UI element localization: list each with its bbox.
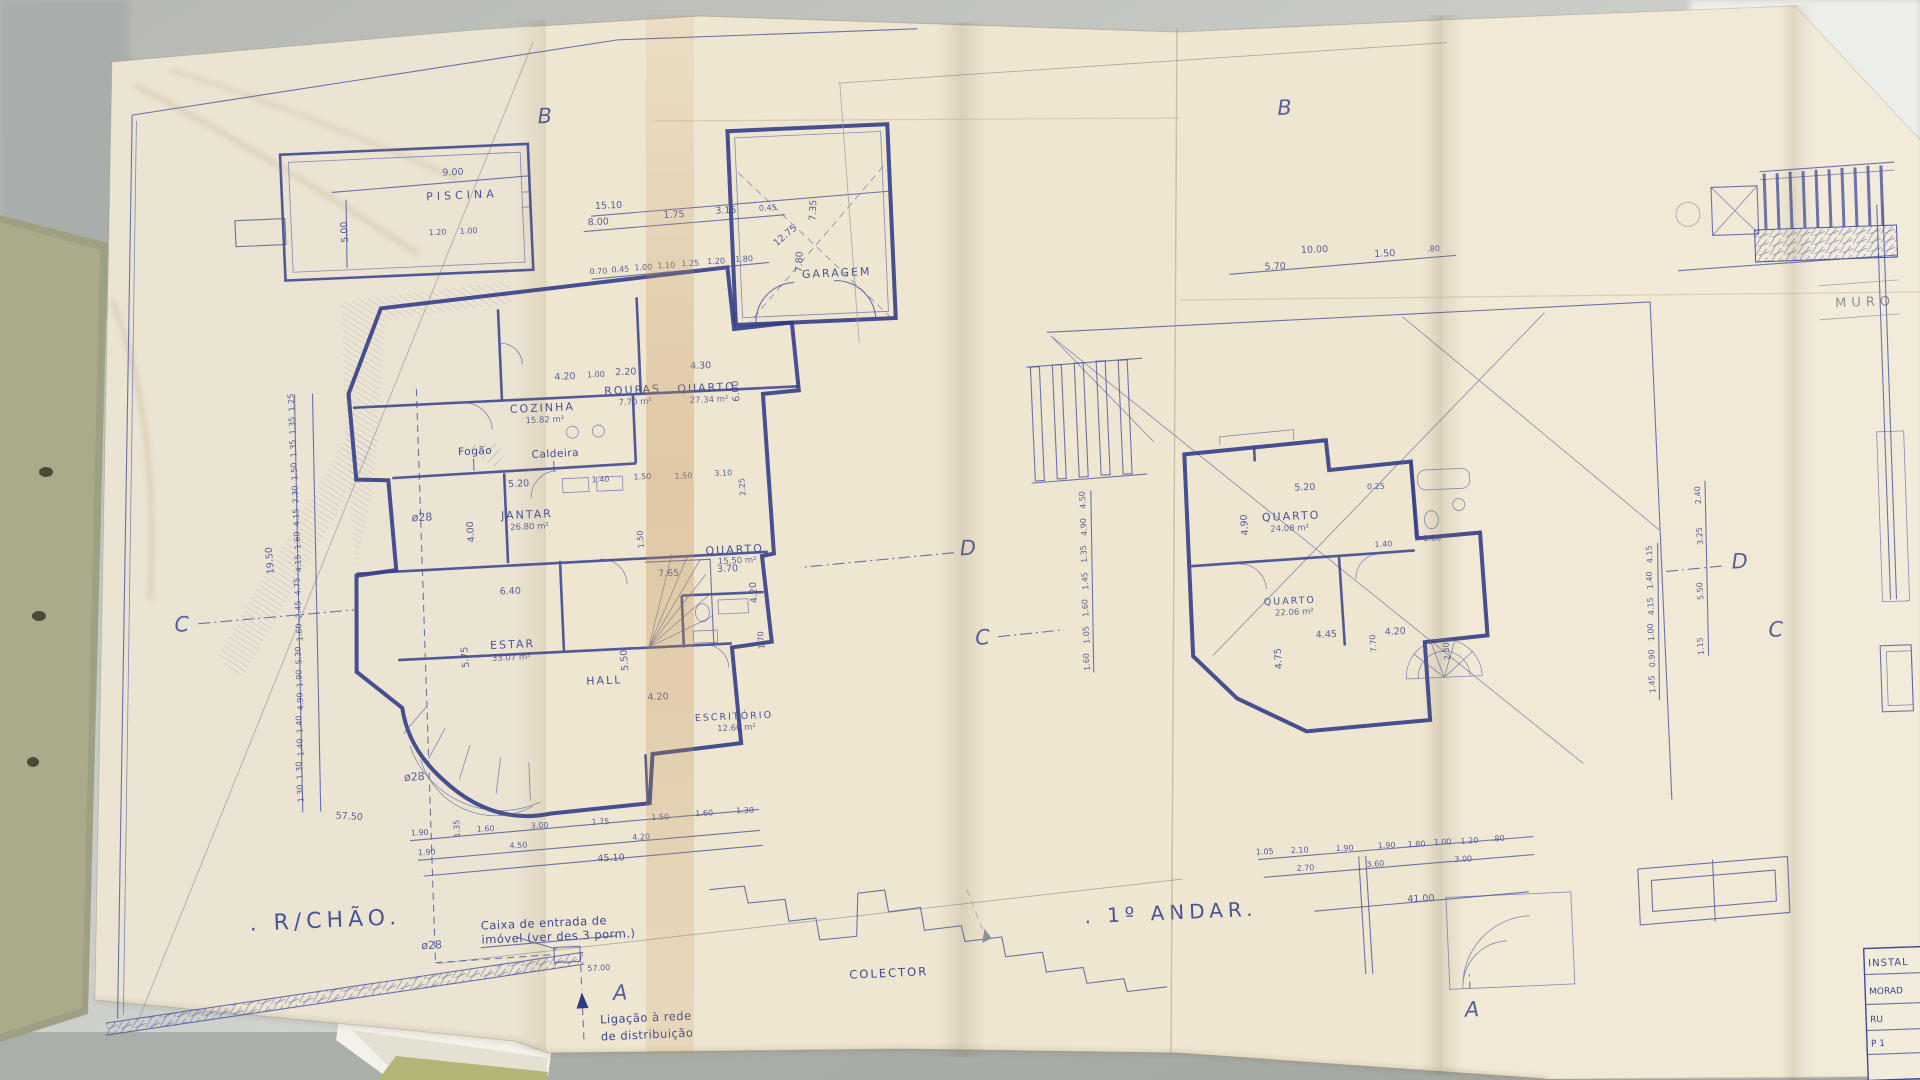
dim-label: 1.75 (591, 817, 609, 827)
room-label: QUARTO (1262, 509, 1321, 525)
binder-hole (27, 757, 39, 767)
dim-label: 3.70 (717, 563, 739, 575)
room-label: QUARTO (1264, 595, 1317, 608)
dim-label: 1.90 (411, 828, 429, 838)
dim-label: 1.60 (292, 531, 302, 549)
dim-label: 4.15 (1646, 597, 1656, 615)
dim-label: 45.10 (597, 852, 625, 864)
dim-label: 1.90 (1377, 841, 1395, 851)
room-area: 24.08 m² (1270, 523, 1309, 535)
dim-label: 2.45 (293, 600, 303, 618)
table-row: RU (1870, 1015, 1883, 1025)
dim-label: 4.50 (1078, 491, 1088, 509)
room-area: 27.34 m² (690, 394, 729, 406)
dim-label: 5.20 (1294, 482, 1316, 494)
dim-label: 0.25 (1367, 482, 1385, 492)
pipe-label: ø28 (404, 770, 425, 784)
pipe-label: ø28 (411, 510, 432, 524)
dim-label: 2.20 (615, 366, 637, 378)
dim-label: 1.40 (591, 475, 609, 485)
dim-label: 1.40 (295, 738, 305, 756)
dim-label: .80 (1492, 834, 1505, 844)
dim-label: 1.15 (1696, 637, 1706, 655)
dim-label: 1.45 (1080, 572, 1090, 590)
dim-label: 0.70 (589, 267, 607, 277)
table-row: MORAD (1869, 986, 1903, 997)
dim-label: 1.00 (1646, 623, 1656, 641)
dim-label: 5.00 (339, 221, 352, 243)
title-block-table: INSTAL MORAD RU P 1 (1864, 947, 1920, 1080)
section-marker-C: C (174, 612, 190, 637)
dim-label: 1.50 (635, 530, 645, 548)
dim-label: 2.25 (737, 478, 747, 496)
dim-label: 4.75 (1273, 648, 1286, 670)
dim-label: 4.15 (291, 508, 301, 526)
dim-label: 1.50 (289, 462, 299, 480)
room-area: 22.06 m² (1275, 607, 1314, 619)
equipment-label: Fogão (458, 445, 493, 458)
dim-label: 1.40 (1374, 539, 1392, 549)
dim-label: 2.10 (1291, 845, 1309, 855)
section-marker-D: D (1731, 549, 1748, 574)
dim-label: 1.60 (294, 623, 304, 641)
section-marker-B: B (1277, 95, 1292, 120)
blueprint-photo: PISCINA GARAGEM COZINHA 15.82 m² ROUPAS … (0, 0, 1920, 1080)
dim-label: 1.00 (587, 370, 605, 380)
dim-label: 1.60 (1080, 599, 1090, 617)
dim-label: 5.50 (1695, 582, 1705, 600)
section-marker-A: A (610, 980, 627, 1005)
dim-label: 7.35 (808, 199, 820, 221)
dim-label: 1.90 (294, 669, 304, 687)
dim-label: 4.20 (554, 371, 576, 383)
dim-label: 2.70 (1296, 863, 1314, 873)
dim-label: 5.30 (293, 646, 303, 664)
section-marker-A: A (1462, 997, 1479, 1022)
dim-label: 1.60 (695, 808, 713, 818)
room-label: HALL (586, 673, 623, 688)
dim-label: 0.90 (1647, 649, 1657, 667)
dim-label: 1.35 (288, 439, 298, 457)
dim-label: 1.60 (1082, 653, 1092, 671)
dim-label: 4.00 (465, 521, 478, 543)
dim-label: 0.45 (759, 203, 777, 213)
dim-label: 1.35 (287, 416, 297, 434)
dim-label: 5.75 (459, 646, 472, 668)
dim-label: 1.30 (295, 784, 305, 802)
tape-stain (646, 14, 694, 1054)
dim-label: 1.70 (756, 631, 766, 649)
dim-label: 5.50 (619, 649, 632, 671)
dim-label: 1.50 (1374, 248, 1396, 260)
dim-label: 1.25 (286, 393, 296, 411)
dim-label: 1.35 (452, 820, 462, 838)
dim-label: 57.50 (335, 811, 363, 824)
dim-label: 2.40 (1693, 486, 1703, 504)
dim-label: 1.20 (428, 228, 446, 238)
dim-label: 4.20 (1384, 626, 1406, 638)
dim-label: 4.90 (1079, 518, 1089, 536)
dim-label: 3.60 (1366, 859, 1384, 869)
dim-label: 7.70 (1368, 634, 1378, 652)
dim-label: 1.30 (294, 761, 304, 779)
dim-label: 1.05 (1081, 626, 1091, 644)
dim-label: 57.00 (587, 963, 610, 973)
dim-label: 3.25 (1695, 527, 1705, 545)
binder-hole (39, 467, 53, 477)
dim-label: 3.10 (714, 468, 732, 478)
dim-label: 1.00 (459, 226, 477, 236)
dim-label: 7.80 (794, 251, 806, 273)
pipe-label: ø28 (421, 938, 442, 952)
dim-label: 1.45 (1647, 675, 1657, 693)
dim-label: 1.20 (707, 256, 725, 266)
dim-label: 15.10 (595, 200, 623, 212)
table-row: INSTAL (1868, 957, 1909, 969)
dim-label: 4.90 (295, 692, 305, 710)
dim-label: 5.70 (1264, 261, 1286, 273)
room-area: 12.60 m² (717, 722, 756, 734)
dim-label: 4.20 (748, 582, 761, 604)
dim-label: 4.90 (1239, 514, 1252, 536)
dim-label: 1.80 (735, 254, 753, 264)
dim-label: 4.75 (292, 577, 302, 595)
dim-label: 3.15 (715, 205, 737, 217)
table-row: P 1 (1871, 1039, 1885, 1049)
dim-label: 1.40 (1645, 571, 1655, 589)
dim-label: 1.05 (1256, 847, 1274, 857)
dim-label: 0.45 (611, 265, 629, 275)
dim-label: 1.30 (736, 806, 754, 816)
dim-label: 1.35 (1079, 545, 1089, 563)
dim-label: 4.15 (1644, 545, 1654, 563)
binder-hole (32, 611, 46, 621)
dim-label: 1.90 (418, 848, 436, 858)
dim-label: 10.00 (1301, 244, 1329, 256)
dim-label: 4.45 (1316, 629, 1338, 641)
dim-label: 1.90 (1336, 843, 1354, 853)
dim-label: 1.60 (477, 824, 495, 834)
dim-label: 19.50 (264, 547, 277, 575)
dim-label: 4.15 (293, 554, 303, 572)
dim-label: 8.00 (587, 216, 609, 228)
dim-label: 6.00 (730, 380, 743, 402)
dim-label: 1.40 (294, 715, 304, 733)
dim-label: 2.30 (290, 485, 300, 503)
